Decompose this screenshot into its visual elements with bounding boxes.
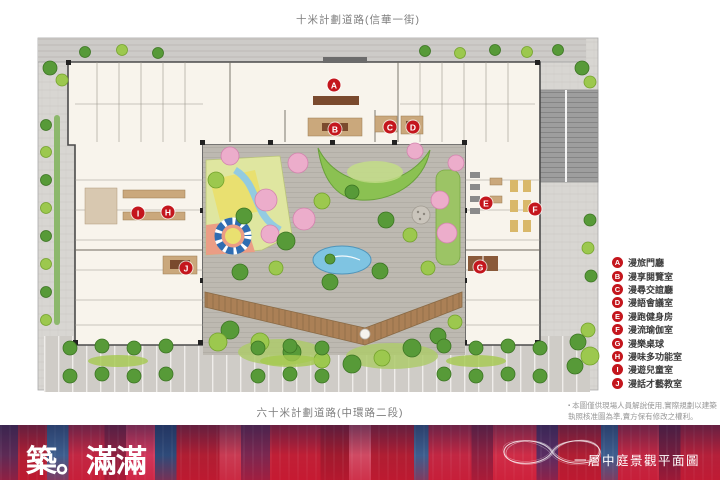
legend-badge-f: F [612, 324, 623, 335]
plan-badge-i: I [132, 207, 145, 220]
drawing-title: 一層中庭景觀平面圖 [574, 450, 700, 469]
plan-badge-h: H [162, 206, 175, 219]
legend-label-c: 漫尋交誼廳 [628, 283, 673, 296]
disclaimer-note: ▪本圖僅供現場人員解說使用,實際規劃以建築 執照核准圖為準,賣方保有修改之權利。 [568, 400, 720, 423]
top-road-label: 十米計劃道路(信華一街) [296, 12, 420, 27]
paver-circle [412, 206, 430, 224]
footnote-bullet: ▪ [568, 403, 570, 409]
legend-item-f: F 漫流瑜伽室 [612, 323, 720, 336]
plan-badge-e: E [480, 197, 493, 210]
legend-label-a: 漫旅門廳 [628, 256, 664, 269]
ramp [538, 90, 598, 182]
legend-badge-i: I [612, 364, 623, 375]
legend-badge-e: E [612, 311, 623, 322]
page: 十米計劃道路(信華一街) [0, 0, 720, 480]
legend-badge-g: G [612, 338, 623, 349]
brand-logo: 築。滿滿 [26, 436, 146, 480]
legend-badge-b: B [612, 271, 623, 282]
plan-badge-a: A [328, 79, 341, 92]
legend-item-j: J 漫話才藝教室 [612, 377, 720, 390]
plan-badge-g: G [474, 261, 487, 274]
legend-item-c: C 漫尋交誼廳 [612, 283, 720, 296]
legend-item-h: H 漫味多功能室 [612, 350, 720, 363]
plan-badge-d: D [407, 121, 420, 134]
legend-badge-c: C [612, 284, 623, 295]
facility-legend: A 漫旅門廳 B 漫享閱覽室 C 漫尋交誼廳 D 漫語會議室 E 漫跑健身房 F… [612, 256, 720, 390]
plan-badge-c: C [384, 121, 397, 134]
plan-badge-b: B [329, 123, 342, 136]
site-plan-illustration [30, 30, 605, 398]
legend-item-e: E 漫跑健身房 [612, 310, 720, 323]
legend-label-d: 漫語會議室 [628, 296, 673, 309]
courtyard-garden [203, 143, 465, 373]
legend-label-b: 漫享閱覽室 [628, 270, 673, 283]
legend-badge-h: H [612, 351, 623, 362]
legend-badge-a: A [612, 257, 623, 268]
legend-item-g: G 漫樂桌球 [612, 336, 720, 349]
footnote-line2: 執照核准圖為準,賣方保有修改之權利。 [568, 412, 698, 421]
legend-item-b: B 漫享閱覽室 [612, 269, 720, 282]
legend-item-a: A 漫旅門廳 [612, 256, 720, 269]
legend-item-d: D 漫語會議室 [612, 296, 720, 309]
legend-label-g: 漫樂桌球 [628, 337, 664, 350]
plan-badge-f: F [529, 203, 542, 216]
entrance-canopy [323, 57, 367, 63]
legend-label-f: 漫流瑜伽室 [628, 323, 673, 336]
legend-label-i: 漫遊兒童室 [628, 363, 673, 376]
footnote-line1: 本圖僅供現場人員解說使用,實際規劃以建築 [572, 401, 717, 410]
legend-item-i: I 漫遊兒童室 [612, 363, 720, 376]
pond [313, 246, 371, 274]
legend-label-h: 漫味多功能室 [628, 350, 682, 363]
plan-badge-j: J [180, 262, 193, 275]
legend-badge-j: J [612, 378, 623, 389]
legend-badge-d: D [612, 297, 623, 308]
bottom-road-label: 六十米計劃道路(中環路二段) [257, 405, 404, 420]
legend-label-j: 漫話才藝教室 [628, 377, 682, 390]
site-plan: A B C D E F G H I J [30, 30, 605, 398]
legend-label-e: 漫跑健身房 [628, 310, 673, 323]
